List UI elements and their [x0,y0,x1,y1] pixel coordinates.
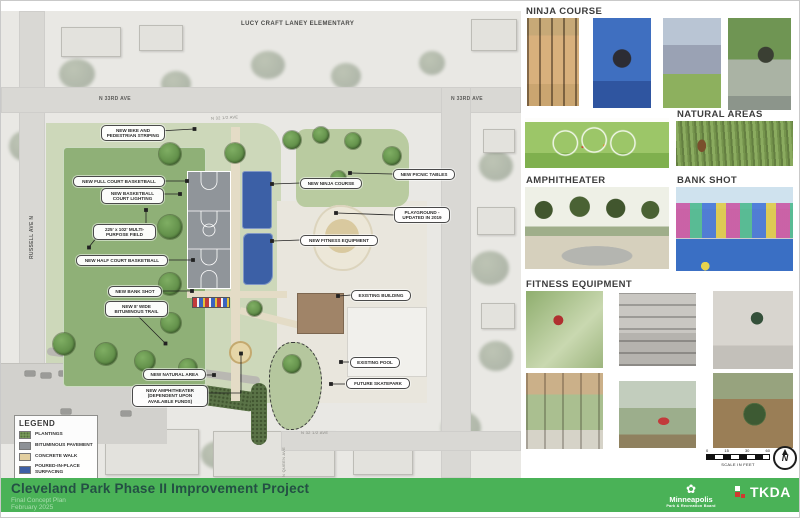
tree [383,147,401,165]
neighborhood-building [139,25,183,51]
tree [95,343,117,365]
tree [283,355,301,373]
concept-plan-sheet: LUCY CRAFT LANEY ELEMENTARY N 33RD AVE N… [0,0,800,518]
project-title: Cleveland Park Phase II Improvement Proj… [11,481,309,496]
tree-canopy-blob [331,63,361,89]
callout-playground: PLAYGROUND - UPDATED IN 2019 [394,207,450,223]
street-label-33rd-left: N 33RD AVE [99,96,131,102]
tree-canopy-blob [479,151,513,181]
tree-canopy-blob [419,51,445,75]
callout-full-court: NEW FULL COURT BASKETBALL [73,176,165,187]
scale-tick: 0 [706,448,708,453]
parked-car [41,373,51,378]
legend-item-pip: POURED-IN-PLACE SURFACING [19,464,93,475]
ninja-course-photo-1 [527,18,579,106]
street-label-33rd-right: N 33RD AVE [451,96,483,102]
legend-item-label: BITUMINOUS PAVEMENT [35,443,93,449]
existing-building-footprint [297,293,344,334]
callout-half-court: NEW HALF COURT BASKETBALL [76,255,168,266]
callout-natural-area: NEW NATURAL AREA [143,369,206,380]
poured-in-place-swatch [19,466,31,474]
tree [159,273,181,295]
scale-bar-label: SCALE IN FEET [706,462,770,467]
ninja-course-photo-3 [663,18,721,108]
scale-tick: 15 [724,448,728,453]
tree-canopy-blob [471,251,509,285]
neighborhood-building [61,27,121,57]
street-label-halfave-top: N 32 1/2 AVE [211,114,239,120]
mprb-flower-icon: ✿ [686,483,696,495]
tree [283,131,301,149]
photo-panel: NINJA COURSE NATURAL AREAS AMPHITHEATER … [521,1,800,478]
fitness-photo-3 [713,291,793,369]
site-plan-map: LUCY CRAFT LANEY ELEMENTARY N 33RD AVE N… [1,11,521,478]
fitness-photo-6 [713,373,793,448]
concrete-swatch [19,453,31,461]
basketball-courts [187,171,231,289]
callout-trail: NEW 8' WIDE BITUMINOUS TRAIL [105,301,168,317]
project-date: February 2025 [11,504,53,511]
scale-bar: 0 15 30 60 SCALE IN FEET [706,448,770,467]
street-label-russell: RUSSELL AVE N [29,216,35,259]
heading-fitness-equipment: FITNESS EQUIPMENT [526,279,632,290]
tkda-name: TKDA [750,484,791,500]
callout-fitness-equipment: NEW FITNESS EQUIPMENT [300,235,378,246]
scale-bar-graphic [706,454,770,460]
north-letter: N [782,453,789,463]
ninja-course-rendering [525,118,669,168]
callout-ninja-course: NEW NINJA COURSE [300,178,362,189]
fitness-equipment-zone [243,233,273,285]
ninja-course-zone [242,171,272,229]
tree [135,351,155,371]
bank-shot-photo [676,187,793,271]
tree-canopy-blob [59,59,95,89]
school-label: LUCY CRAFT LANEY ELEMENTARY [241,21,354,27]
street-label-halfave-bottom: N 32 1/2 AVE [301,430,328,435]
callout-bank-shot: NEW BANK SHOT [108,286,162,297]
callout-existing-pool: EXISTING POOL [350,357,400,368]
heading-natural-areas: NATURAL AREAS [677,109,763,120]
legend: LEGEND PLANTINGS BITUMINOUS PAVEMENT CON… [14,415,98,478]
legend-item-concrete: CONCRETE WALK [19,453,93,461]
school-building [471,19,517,51]
natural-areas-photo [676,121,793,166]
mprb-subtitle: Park & Recreation Board [666,504,715,508]
mprb-logo: ✿ Minneapolis Park & Recreation Board [653,479,729,512]
legend-item-label: PLANTINGS [35,432,63,438]
plantings-swatch [19,431,31,439]
title-bar: Cleveland Park Phase II Improvement Proj… [1,478,800,512]
parked-car [121,411,131,416]
tree-canopy-blob [251,51,285,79]
tree [53,333,75,355]
callout-future-skatepark: FUTURE SKATEPARK [346,378,410,389]
north-arrow-icon: N [773,446,797,470]
scale-tick: 60 [766,448,770,453]
heading-amphitheater: AMPHITHEATER [526,175,606,186]
tree [158,215,182,239]
legend-title: LEGEND [19,419,93,428]
street-label-queen: N QUEEN AVE [281,447,286,477]
callout-existing-building: EXISTING BUILDING [351,290,411,301]
legend-item-label: POURED-IN-PLACE SURFACING [35,464,93,475]
legend-item-label: CONCRETE WALK [35,454,77,460]
tree [247,301,262,316]
callout-picnic-tables: NEW PICNIC TABLES [393,169,455,180]
natural-area-planting [251,383,267,445]
heading-bank-shot: BANK SHOT [677,175,737,186]
ninja-course-photo-2 [593,18,651,108]
bank-shot-zone [192,297,230,308]
parked-car [61,409,71,414]
callout-bike-striping: NEW BIKE AND PEDESTRIAN STRIPING [101,125,165,141]
heading-ninja-course: NINJA COURSE [526,6,602,17]
callout-field: 225' x 102' MULTI-PURPOSE FIELD [93,224,156,240]
scale-tick: 30 [745,448,749,453]
ninja-course-photo-4 [728,18,791,110]
neighborhood-building [483,129,515,153]
tkda-logo: TKDA [735,484,791,500]
project-subtitle: Final Concept Plan [11,497,66,504]
neighborhood-building [481,303,515,329]
tree-canopy-blob [479,341,513,371]
amphitheater-rendering [525,187,669,269]
fitness-photo-4 [526,373,603,449]
parked-car [25,371,35,376]
mprb-name: Minneapolis [669,495,712,504]
scale-bar-ticks: 0 15 30 60 [706,448,770,453]
bituminous-swatch [19,442,31,450]
tree [159,143,181,165]
fitness-photo-5 [619,381,696,448]
tkda-mark-icon [735,486,747,498]
queen-ave-road [441,87,471,478]
tree [225,143,245,163]
callout-court-lighting: NEW BASKETBALL COURT LIGHTING [101,188,164,204]
legend-item-bituminous: BITUMINOUS PAVEMENT [19,442,93,450]
fitness-photo-2 [619,293,696,366]
amphitheater-footprint [229,341,252,364]
neighborhood-building [477,207,515,235]
fitness-photo-1 [526,291,603,368]
tree [313,127,329,143]
legend-item-plantings: PLANTINGS [19,431,93,439]
tree [345,133,361,149]
callout-amphitheater: NEW AMPHITHEATER (DEPENDENT UPON AVAILAB… [132,385,208,407]
